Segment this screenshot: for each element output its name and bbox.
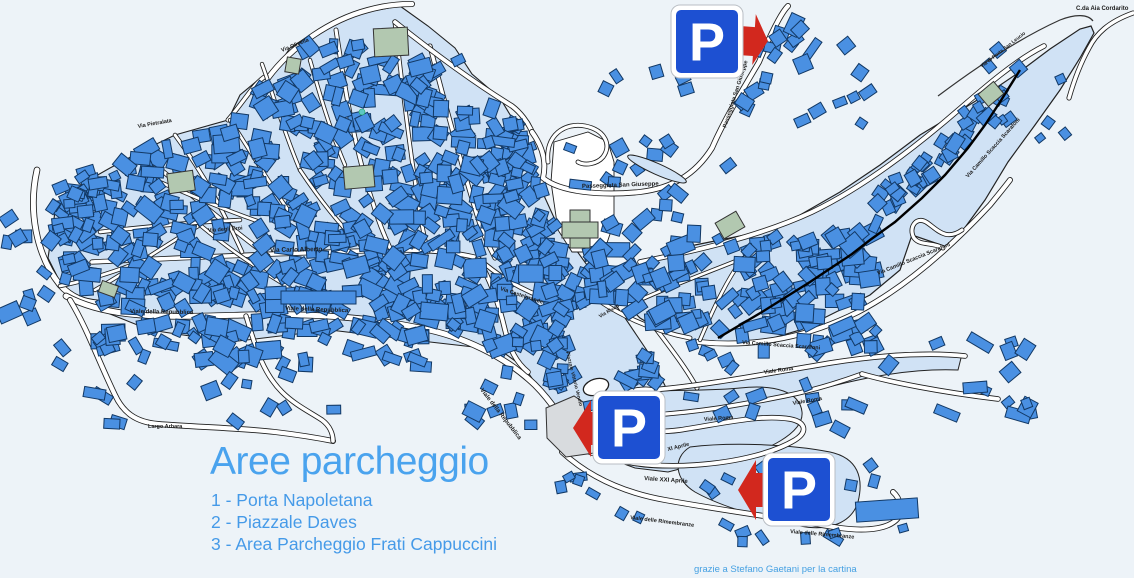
svg-text:C.da Aia Cordarito: C.da Aia Cordarito <box>1076 6 1129 12</box>
svg-text:3 - Area Parcheggio Frati Capp: 3 - Area Parcheggio Frati Cappuccini <box>211 534 497 554</box>
svg-text:Largo Arbara: Largo Arbara <box>148 424 183 430</box>
svg-text:2 - Piazzale Daves: 2 - Piazzale Daves <box>211 512 357 532</box>
svg-text:grazie a Stefano Gaetani per l: grazie a Stefano Gaetani per la cartina <box>694 564 857 575</box>
svg-text:Viale della Repubblica: Viale della Repubblica <box>130 309 194 316</box>
svg-text:P: P <box>689 13 725 73</box>
svg-text:P: P <box>611 399 647 459</box>
svg-text:1 - Porta Napoletana: 1 - Porta Napoletana <box>211 490 373 510</box>
svg-text:P: P <box>781 461 817 521</box>
svg-text:Aree parcheggio: Aree parcheggio <box>210 440 489 483</box>
svg-text:Via Carlo Alberto: Via Carlo Alberto <box>270 246 323 254</box>
